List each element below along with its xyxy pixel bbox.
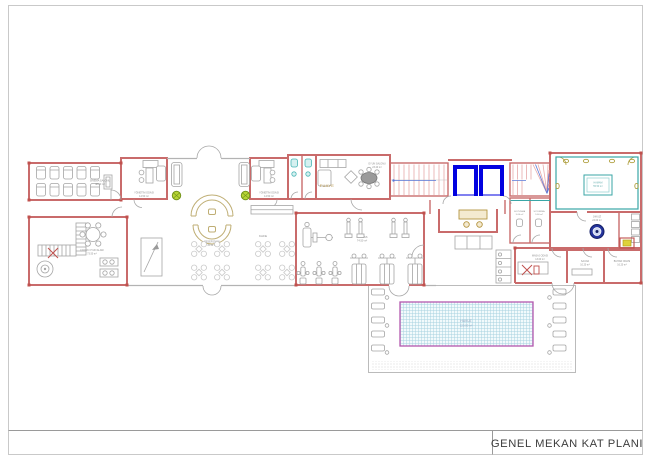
tv-unit [320, 160, 346, 168]
exercise-bikes [297, 262, 341, 285]
cabinet [259, 161, 274, 168]
cafe-label: KAFE [259, 234, 267, 238]
sink-icon [306, 172, 310, 176]
desk [146, 168, 153, 183]
jacuzzi-area: 24.00 m² [592, 219, 602, 222]
beach-dots-texture [372, 361, 572, 370]
cabinet [143, 161, 158, 168]
toilet-icon [305, 159, 312, 167]
office-right-area: 14.50 m² [264, 195, 274, 198]
office-left-area: 14.50 m² [139, 195, 149, 198]
armchair [252, 166, 261, 181]
locker-bench [496, 250, 511, 283]
floor-plan-sheet: HAVUZ 120.00 m² [0, 0, 651, 460]
sauna-bench [572, 269, 592, 275]
sheet-title: GENEL MEKAN KAT PLANI [491, 438, 643, 450]
steam-area: 16.20 m² [617, 264, 627, 267]
fitness-area: 74.50 m² [357, 239, 367, 243]
sheet-border [9, 6, 643, 455]
massage-table [518, 262, 548, 274]
toilet-icon [536, 219, 542, 227]
sauna-area: 10.20 m² [580, 264, 590, 267]
changing-left-label: SOYUNMA [514, 210, 526, 213]
meeting-table [361, 173, 377, 184]
pool-label: HAVUZ [460, 319, 471, 323]
bar-table [459, 210, 487, 219]
cinema-area: 48.50 m² [95, 183, 105, 186]
pool-area: 120.00 m² [460, 324, 473, 328]
massage-area: 13.00 m² [535, 258, 545, 261]
round-table [86, 228, 100, 242]
hamam-area: 55.50 m² [593, 185, 603, 188]
changing-left-area: 5.60 m² [516, 213, 524, 216]
game-room-area: 23.20 m² [372, 166, 382, 169]
floor-plan-drawing: HAVUZ 120.00 m² [0, 0, 651, 460]
foyer-label: FUAYE [320, 183, 335, 188]
bar-stool [464, 222, 470, 228]
bar-stool [477, 222, 483, 228]
sink-icon [292, 172, 296, 176]
kids-area: 73.50 m² [87, 252, 97, 255]
pool-terrace: HAVUZ 120.00 m² [369, 286, 576, 373]
bar-cabinet [455, 236, 492, 249]
ping-pong-table [141, 238, 162, 276]
toilet-icon [291, 159, 298, 167]
changing-right-area: 5.60 m² [535, 213, 543, 216]
changing-right-label: SOYUNMA [533, 210, 545, 213]
armchair [157, 166, 166, 181]
toilet-icon [517, 219, 523, 227]
stairs-left [391, 165, 447, 196]
